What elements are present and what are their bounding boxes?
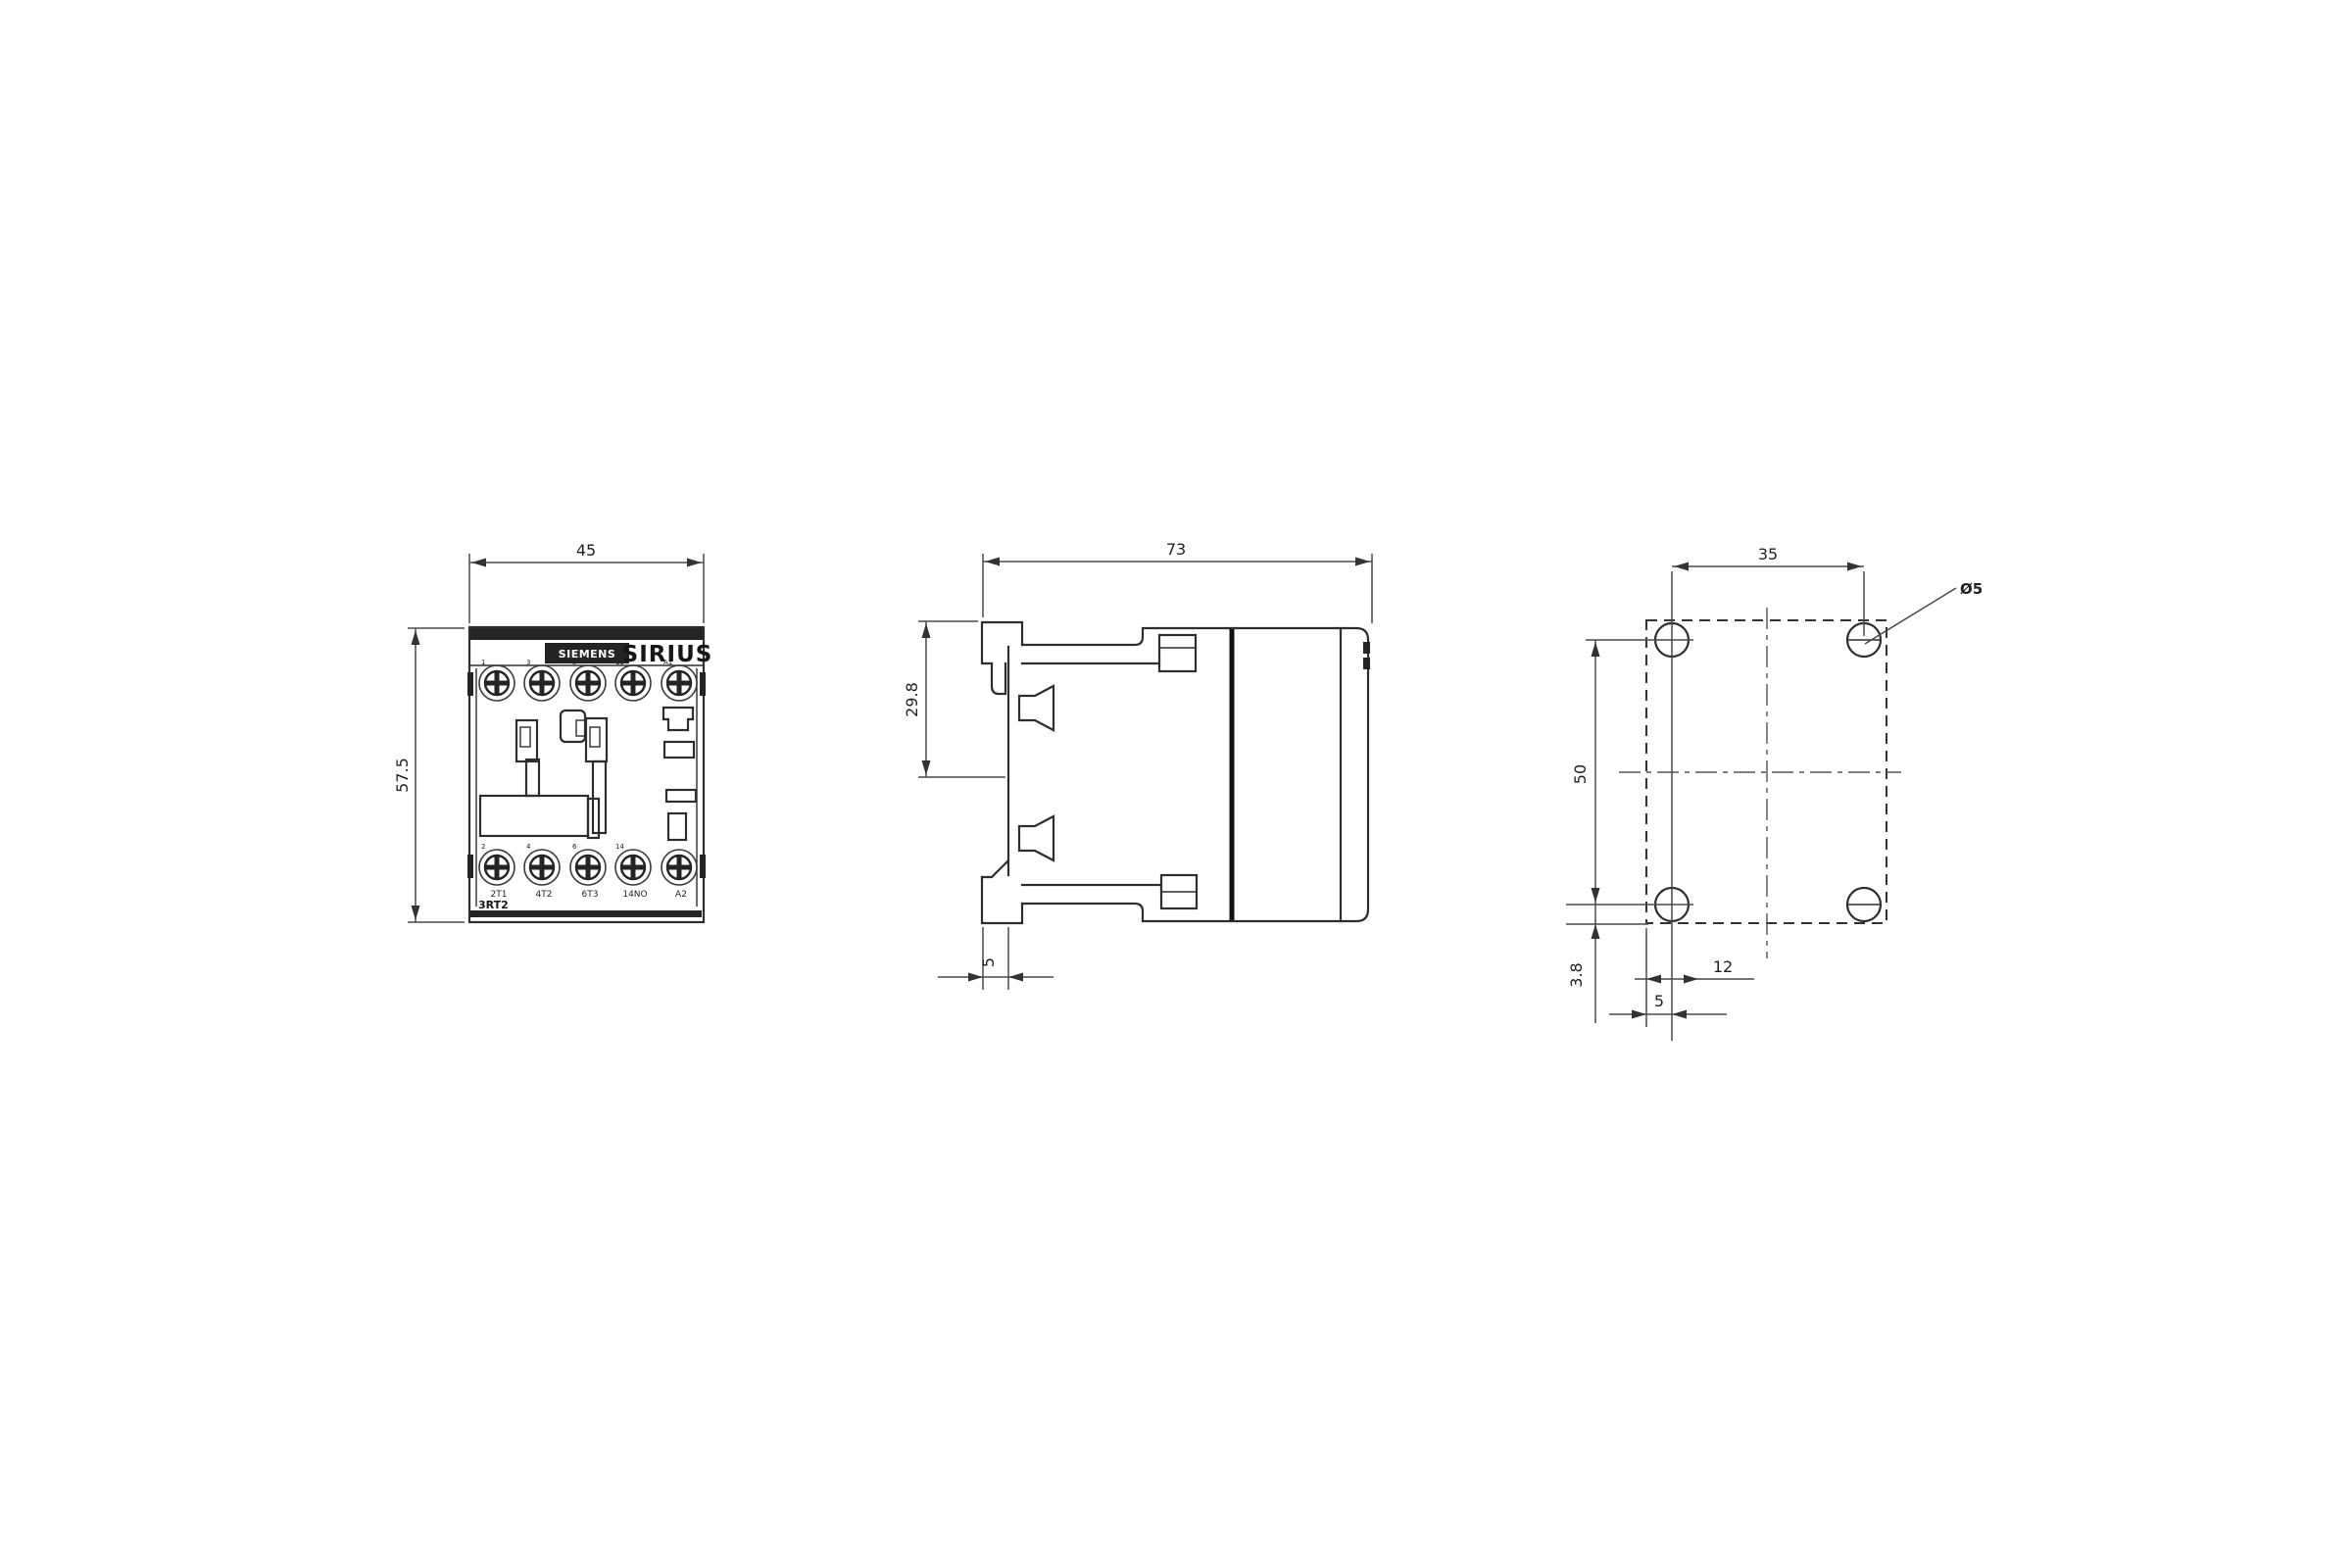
screw-terminals-top <box>479 665 697 701</box>
dim-offset-12: 12 <box>1713 957 1733 976</box>
screw-terminal <box>570 665 606 701</box>
dim-hole-spacing-v: 50 <box>1571 764 1590 784</box>
dim-front-width: 45 <box>576 541 596 560</box>
terminal-block-top <box>1159 635 1196 671</box>
dim-side-foot: 5 <box>979 957 998 967</box>
edge-mark <box>700 855 706 878</box>
screw-terminal <box>524 665 560 701</box>
dim-hole-to-edge: 3.8 <box>1567 962 1586 987</box>
terminal-number: A1 <box>663 659 672 666</box>
dim-offset-5: 5 <box>1654 992 1664 1010</box>
side-dimensions: 73 29.8 5 <box>903 540 1372 990</box>
edge-mark <box>700 672 706 696</box>
terminal-label: 4T2 <box>536 890 553 900</box>
screw-terminal <box>524 850 560 885</box>
edge-mark <box>467 855 473 878</box>
screw-terminal <box>570 850 606 885</box>
housing-mark <box>1363 642 1370 654</box>
front-body: SIEMENS SIRIUS 1 3 5 13 A1 <box>467 627 712 922</box>
front-view: 45 57.5 SIEMENS SIRIUS <box>393 541 712 922</box>
dimension-drawing: 45 57.5 SIEMENS SIRIUS <box>0 0 2352 1568</box>
din-clip-top <box>992 663 1005 694</box>
terminal-number: 14 <box>615 843 624 851</box>
terminal-number: 3 <box>526 659 530 666</box>
terminal-labels-bottom: 2T1 4T2 6T3 14NO A2 <box>491 890 687 900</box>
screw-terminal <box>479 850 514 885</box>
edge-mark <box>467 672 473 696</box>
dimension-drawing-page: 45 57.5 SIEMENS SIRIUS <box>0 0 2352 1568</box>
side-body <box>982 622 1370 923</box>
rail-jaw-bottom <box>1019 816 1053 860</box>
rail-jaw-top <box>1019 686 1053 730</box>
dim-side-rail: 29.8 <box>903 682 921 717</box>
terminal-label: 6T3 <box>582 890 599 900</box>
mounting-dimensions: 35 Ø5 50 3.8 12 5 <box>1566 545 1983 1041</box>
housing-block <box>1232 628 1368 921</box>
screw-terminal <box>479 665 514 701</box>
siemens-logo-text: SIEMENS <box>559 648 616 661</box>
hole-diameter-label: Ø5 <box>1960 580 1983 598</box>
terminal-number: 4 <box>526 843 531 851</box>
housing-mark <box>1363 658 1370 669</box>
terminal-number: 2 <box>481 843 485 851</box>
type-label: 3RT2 <box>478 899 509 911</box>
side-view: 73 29.8 5 <box>903 540 1372 990</box>
terminal-number: 5 <box>572 659 576 666</box>
din-hook-top <box>982 622 1022 663</box>
screw-terminal <box>615 665 651 701</box>
terminal-number: 6 <box>572 843 577 851</box>
screw-terminals-bottom <box>479 850 697 885</box>
front-bottom-bar <box>470 910 702 917</box>
mounting-view: 35 Ø5 50 3.8 12 5 <box>1566 545 1983 1041</box>
terminal-label: 14NO <box>622 890 647 900</box>
dim-front-height: 57.5 <box>393 758 412 793</box>
screw-terminal <box>661 665 697 701</box>
terminal-numbers-bottom: 2 4 6 14 <box>481 843 624 851</box>
screw-terminal <box>615 850 651 885</box>
front-top-bar <box>470 628 703 640</box>
din-hook-bottom <box>982 877 1022 923</box>
front-right-column <box>663 708 696 840</box>
front-mechanism <box>480 710 607 838</box>
screw-terminal <box>661 850 697 885</box>
terminal-number: 1 <box>481 659 485 666</box>
terminal-label: A2 <box>675 890 687 900</box>
dim-hole-spacing-h: 35 <box>1758 545 1778 563</box>
din-hook-bottom-edge <box>982 861 1007 877</box>
mounting-outline <box>1619 608 1901 958</box>
dim-side-depth: 73 <box>1166 540 1186 559</box>
terminal-number: 13 <box>615 659 624 666</box>
